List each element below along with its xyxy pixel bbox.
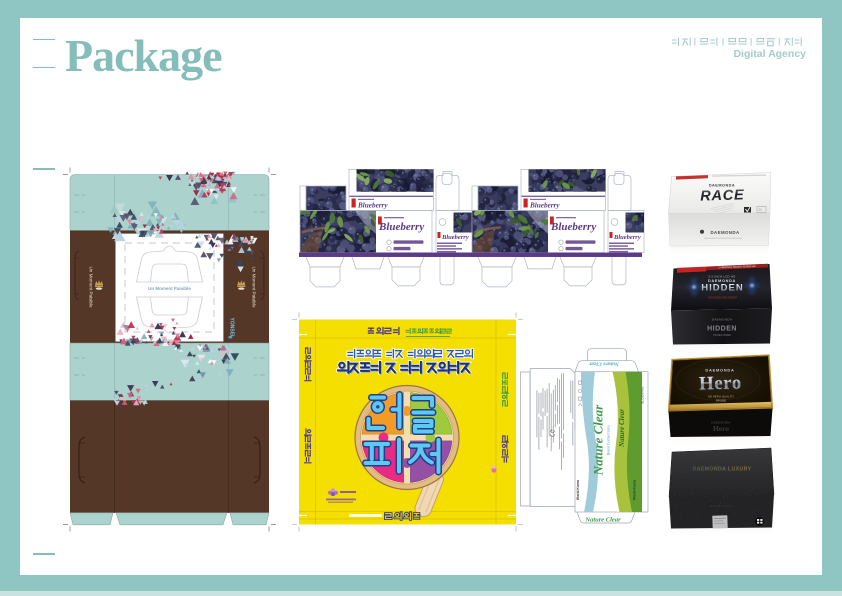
svg-text:DAEMONDA: DAEMONDA <box>710 230 739 235</box>
svg-text:Un Moment Paisible: Un Moment Paisible <box>252 266 257 308</box>
svg-text:DAEMONDA LUXURY: DAEMONDA LUXURY <box>693 467 752 473</box>
svg-text:HD RECORDER: HD RECORDER <box>713 334 731 337</box>
svg-text:Blueberry: Blueberry <box>613 234 641 241</box>
svg-text:Brand Contact Lens: Brand Contact Lens <box>607 425 611 455</box>
svg-text:Nature Clear: Nature Clear <box>591 404 606 476</box>
svg-text:YONSEI: YONSEI <box>229 318 235 338</box>
svg-text:Blueberry: Blueberry <box>550 221 596 233</box>
svg-text:Nature Clear: Nature Clear <box>588 361 620 367</box>
svg-text:Hero: Hero <box>713 424 729 433</box>
svg-text:Blueberry: Blueberry <box>378 221 424 233</box>
svg-text:Un Moment Paisible: Un Moment Paisible <box>148 286 191 291</box>
svg-text:DAEMONDA: DAEMONDA <box>710 504 733 508</box>
svg-text:World Korea: World Korea <box>633 480 637 500</box>
svg-text:HIDDEN: HIDDEN <box>701 283 743 294</box>
svg-text:HD HERO QUALITY: HD HERO QUALITY <box>708 395 735 399</box>
svg-text:Un Moment Paisible: Un Moment Paisible <box>89 266 94 308</box>
svg-text:20: 20 <box>759 208 763 212</box>
svg-text:RACE: RACE <box>700 187 745 204</box>
svg-text:Blueberry: Blueberry <box>529 202 560 210</box>
svg-text:HIDDEN: HIDDEN <box>707 326 737 333</box>
svg-text:Nature Clear: Nature Clear <box>584 517 621 524</box>
svg-text:BLOOMING: BLOOMING <box>641 386 645 404</box>
svg-text:Blueberry: Blueberry <box>441 234 469 241</box>
svg-text:3.5 INCH LCD HD: 3.5 INCH LCD HD <box>708 275 735 279</box>
svg-text:Blueberry: Blueberry <box>357 202 388 210</box>
svg-text:Nature Clear: Nature Clear <box>618 409 626 448</box>
svg-text:HD HIDDEN RECORDER: HD HIDDEN RECORDER <box>708 297 737 300</box>
svg-text:Hero: Hero <box>699 372 742 394</box>
svg-text:DAEMONDA: DAEMONDA <box>712 318 733 322</box>
svg-text:World Korea: World Korea <box>576 480 580 500</box>
svg-text:DR-5000: DR-5000 <box>716 400 727 403</box>
